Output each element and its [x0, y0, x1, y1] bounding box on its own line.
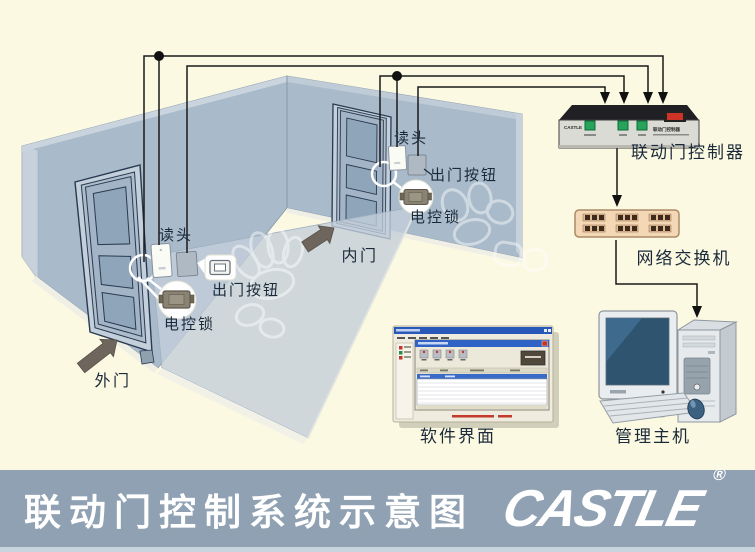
junction-dot-inner — [392, 71, 402, 81]
outer-exit-button-label: 出门按钮 — [212, 282, 280, 299]
inner-door-label: 内门 — [341, 247, 378, 265]
inner-exit-button-label: 出门按钮 — [430, 167, 498, 184]
controller-brand-text: CASTLE — [564, 125, 582, 130]
registered-mark: ® — [712, 465, 729, 485]
inner-lock-label: 电控锁 — [410, 209, 461, 226]
inner-reader-device — [388, 146, 406, 171]
controller-label: 联动门控制器 — [631, 143, 745, 162]
inner-door-panel-top — [347, 118, 378, 163]
software-dialog — [415, 340, 549, 410]
software-window — [393, 326, 559, 428]
outer-exit-button-device — [176, 251, 198, 276]
software-tree-panel — [396, 343, 413, 419]
controller-button-3 — [637, 121, 647, 130]
left-wall-edge — [22, 146, 38, 280]
electric-lock-icon-inner — [400, 190, 432, 205]
controller-button-1 — [585, 121, 595, 130]
dialog-close-icon — [542, 341, 548, 346]
software-label: 软件界面 — [420, 427, 496, 446]
footer-bottom-strip — [0, 547, 755, 552]
outer-reader-label: 读头 — [159, 227, 193, 244]
door-controller: CASTLE 联动门控制器 — [559, 105, 699, 148]
inner-reader-label: 读头 — [394, 130, 428, 147]
software-menubar — [397, 337, 449, 339]
outer-reader-device — [151, 243, 172, 277]
page-title: 联动门控制系统示意图 — [24, 482, 474, 536]
controller-panel-text: 联动门控制器 — [653, 126, 680, 133]
host-label: 管理主机 — [615, 427, 691, 446]
controller-power-switch — [667, 113, 683, 120]
junction-dot-outer — [154, 51, 164, 61]
schematic-page: CASTLE 联动门控制器 联动门控制器 网络交换机 — [0, 0, 755, 552]
right-wall-right-edge — [516, 113, 522, 258]
management-host — [599, 311, 736, 423]
castle-logo-text: CASTLE — [498, 480, 706, 538]
outer-lock-label: 电控锁 — [164, 316, 215, 333]
network-switch — [575, 210, 679, 237]
software-red-caption — [452, 415, 494, 418]
electric-lock-icon — [159, 291, 194, 308]
castle-logo: CASTLE® — [498, 479, 719, 539]
diagram-svg: CASTLE 联动门控制器 联动门控制器 网络交换机 — [0, 0, 755, 470]
controller-button-2 — [618, 121, 628, 130]
outer-door-panel-top — [93, 187, 129, 245]
outer-door-panel-middle — [99, 256, 133, 289]
switch-label: 网络交换机 — [637, 249, 732, 268]
outer-door-label: 外门 — [94, 372, 131, 390]
outer-door-foot — [140, 350, 154, 364]
inner-exit-button-device — [408, 155, 426, 175]
dialog-table-header — [417, 374, 547, 379]
footer-bar: 联动门控制系统示意图 CASTLE® — [0, 470, 755, 547]
